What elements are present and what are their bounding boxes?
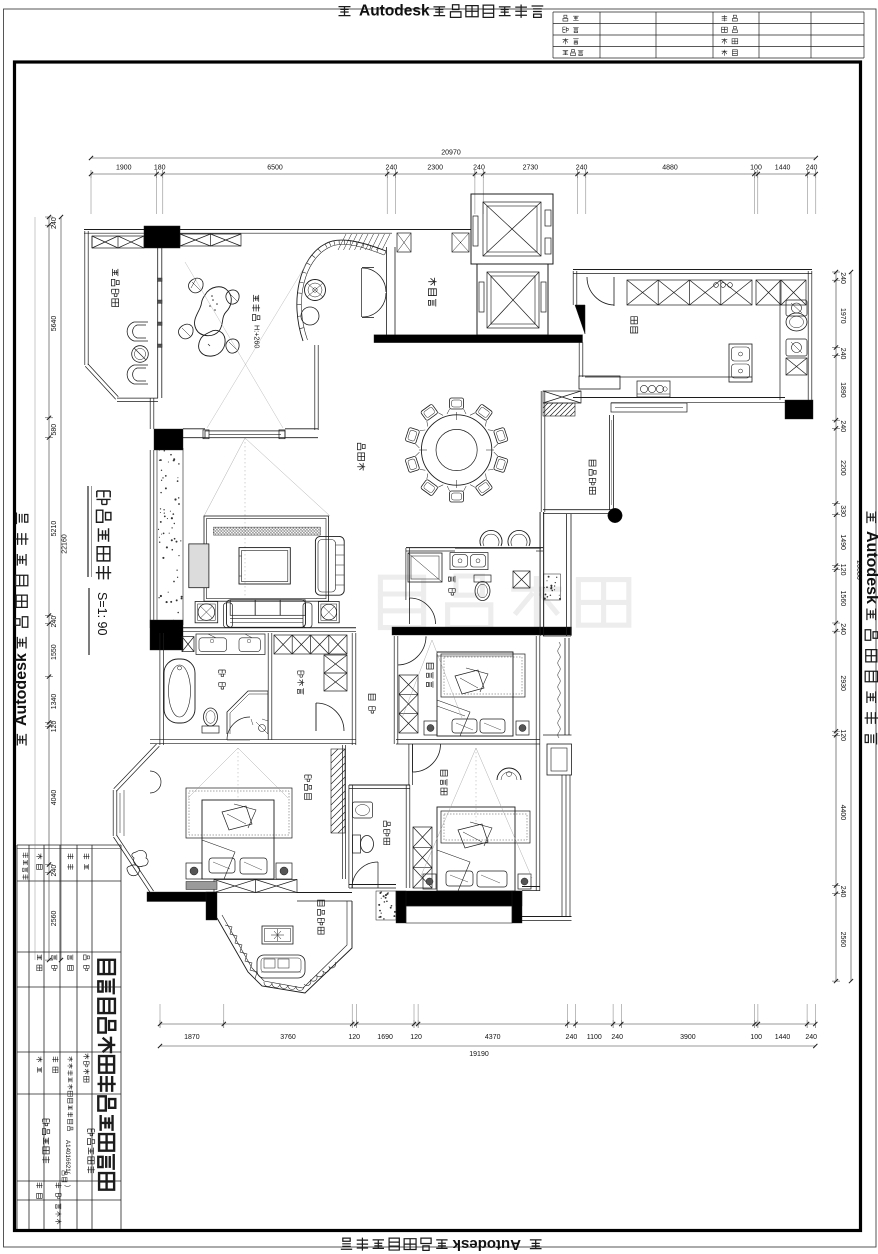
svg-text:1900: 1900 [116, 165, 132, 172]
svg-text:): ) [64, 1185, 71, 1187]
svg-text:240: 240 [805, 1034, 817, 1041]
svg-text:1690: 1690 [377, 1034, 393, 1041]
svg-text:A14016621(: A14016621( [64, 1140, 71, 1175]
svg-text:Autodesk: Autodesk [863, 531, 878, 604]
svg-text:4040: 4040 [51, 790, 58, 806]
svg-text:Autodesk: Autodesk [13, 653, 30, 726]
svg-text:120: 120 [410, 1034, 422, 1041]
svg-text:1560: 1560 [839, 591, 846, 607]
svg-text:Autodesk: Autodesk [359, 3, 430, 20]
svg-text:2930: 2930 [839, 675, 846, 691]
svg-text:580: 580 [51, 424, 58, 436]
svg-text:2560: 2560 [51, 911, 58, 927]
svg-text:240: 240 [839, 348, 846, 360]
svg-text:2300: 2300 [427, 165, 443, 172]
svg-text:240: 240 [839, 623, 846, 635]
svg-text:5640: 5640 [51, 316, 58, 332]
svg-text:1890: 1890 [839, 382, 846, 398]
svg-text:22160: 22160 [62, 534, 69, 554]
svg-text:Autodesk: Autodesk [452, 1236, 521, 1253]
svg-text:120: 120 [51, 721, 58, 733]
svg-text:240: 240 [51, 616, 58, 628]
svg-text:240: 240 [566, 1034, 578, 1041]
svg-text:H:+260: H:+260 [253, 325, 262, 348]
svg-text:1550: 1550 [51, 644, 58, 660]
svg-text:4880: 4880 [662, 165, 678, 172]
svg-text:120: 120 [839, 564, 846, 576]
svg-text:240: 240 [611, 1034, 623, 1041]
svg-text:240: 240 [806, 165, 818, 172]
svg-text:1970: 1970 [839, 308, 846, 324]
svg-text:20680: 20680 [855, 560, 862, 580]
svg-text:4400: 4400 [839, 805, 846, 821]
svg-text:240: 240 [576, 165, 588, 172]
svg-text:240: 240 [51, 865, 58, 877]
svg-text:2730: 2730 [523, 165, 539, 172]
svg-text:19190: 19190 [469, 1051, 489, 1058]
svg-text:3900: 3900 [680, 1034, 696, 1041]
svg-text:2560: 2560 [839, 932, 846, 948]
svg-text:330: 330 [839, 505, 846, 517]
svg-text:240: 240 [839, 420, 846, 432]
svg-text:1490: 1490 [839, 534, 846, 550]
svg-text:1870: 1870 [184, 1034, 200, 1041]
svg-text:1440: 1440 [775, 1034, 791, 1041]
svg-text:5210: 5210 [51, 521, 58, 537]
svg-text:1440: 1440 [775, 165, 791, 172]
svg-text:100: 100 [750, 1034, 762, 1041]
svg-text:120: 120 [839, 729, 846, 741]
svg-text:180: 180 [154, 165, 166, 172]
svg-text:240: 240 [386, 165, 398, 172]
svg-text:20970: 20970 [441, 150, 461, 157]
svg-text:S=1: 90: S=1: 90 [95, 592, 109, 635]
svg-text:6500: 6500 [267, 165, 283, 172]
svg-text:100: 100 [750, 165, 762, 172]
svg-text:4370: 4370 [485, 1034, 501, 1041]
svg-text:3760: 3760 [280, 1034, 296, 1041]
svg-text:240: 240 [473, 165, 485, 172]
svg-text:2200: 2200 [839, 460, 846, 476]
svg-text:240: 240 [51, 217, 58, 229]
svg-text:1100: 1100 [587, 1034, 602, 1041]
svg-text:120: 120 [348, 1034, 360, 1041]
svg-text:240: 240 [839, 272, 846, 284]
svg-text:1340: 1340 [51, 694, 58, 710]
svg-text:240: 240 [839, 886, 846, 898]
